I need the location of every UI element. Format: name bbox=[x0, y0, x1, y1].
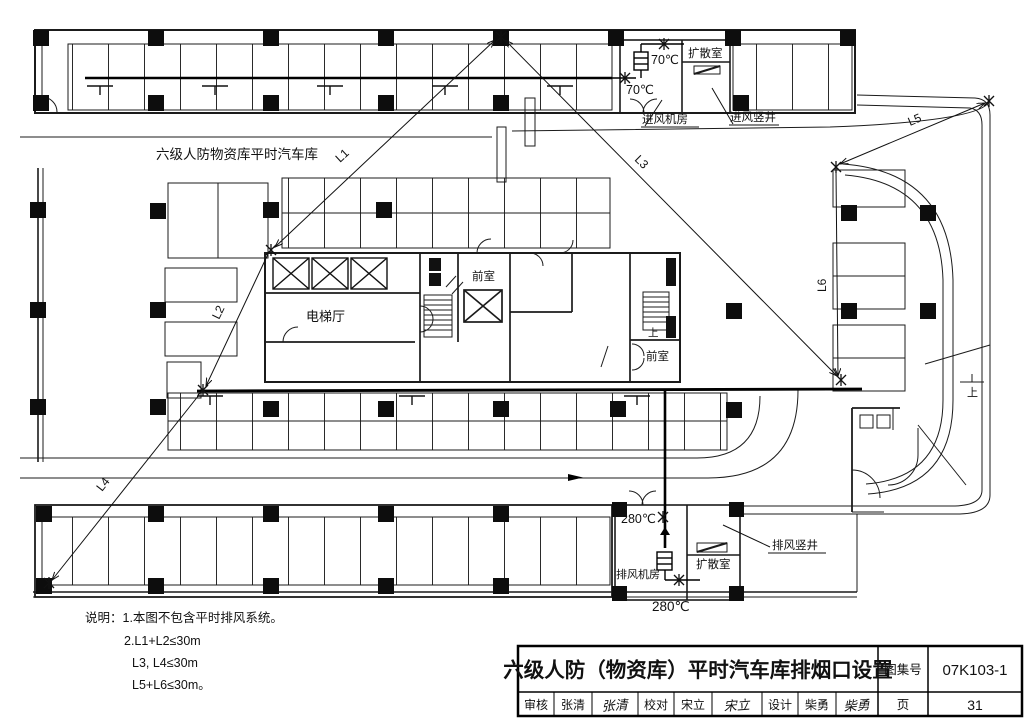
note-line-2: 2.L1+L2≤30m bbox=[124, 634, 201, 648]
floor-plan-svg: 六级人防物资库平时汽车库 70℃ 70℃ 扩散室 进风机房 进风竖井 电梯厅 前… bbox=[0, 0, 1028, 721]
intake-temp-2: 70℃ bbox=[626, 83, 654, 97]
measure-l5: L5 bbox=[906, 111, 924, 129]
proof-name: 宋立 bbox=[681, 697, 705, 712]
front-room-2-label: 前室 bbox=[646, 349, 669, 363]
design-signature: 柴勇 bbox=[843, 698, 871, 715]
exhaust-temp-1: 280℃ bbox=[621, 512, 656, 526]
measure-l1: L1 bbox=[332, 146, 352, 166]
page-number: 31 bbox=[967, 697, 983, 713]
notes-block: 说明：1.本图不包含平时排风系统。 2.L1+L2≤30m L3, L4≤30m… bbox=[85, 610, 283, 692]
drawing-title: 六级人防（物资库）平时汽车库排烟口设置 bbox=[503, 658, 893, 682]
exhaust-shaft-label: 排风竖井 bbox=[772, 538, 818, 552]
measure-l3: L3 bbox=[632, 152, 652, 172]
review-signature: 张清 bbox=[601, 698, 630, 715]
proof-signature: 宋立 bbox=[723, 698, 751, 715]
intake-shaft-label: 进风竖井 bbox=[730, 110, 776, 124]
ramp-up-label: 上 bbox=[967, 386, 978, 399]
note-line-3: L3, L4≤30m bbox=[132, 656, 198, 670]
intake-temp-1: 70℃ bbox=[651, 53, 679, 67]
measure-l4: L4 bbox=[93, 474, 112, 493]
intake-diffusion-room-label: 扩散室 bbox=[688, 46, 723, 60]
measure-l6: L6 bbox=[815, 278, 829, 292]
page-label: 页 bbox=[897, 698, 910, 712]
elevator-hall-label: 电梯厅 bbox=[306, 309, 345, 324]
intake-fan-room-label: 进风机房 bbox=[642, 112, 688, 126]
note-line-1: 说明：1.本图不包含平时排风系统。 bbox=[85, 610, 283, 625]
design-label: 设计 bbox=[768, 698, 792, 712]
exhaust-fan-room-label: 排风机房 bbox=[616, 567, 660, 581]
proof-label: 校对 bbox=[644, 697, 668, 712]
note-line-4: L5+L6≤30m。 bbox=[132, 678, 211, 692]
title-block: 六级人防（物资库）平时汽车库排烟口设置 图集号 07K103-1 审核 张清 张… bbox=[503, 646, 1022, 716]
atlas-number-value: 07K103-1 bbox=[942, 662, 1007, 679]
exhaust-diffusion-room-label: 扩散室 bbox=[696, 557, 731, 571]
atlas-number-label: 图集号 bbox=[884, 662, 922, 677]
design-name: 柴勇 bbox=[805, 698, 829, 712]
garage-area-label: 六级人防物资库平时汽车库 bbox=[156, 146, 318, 162]
drawing-sheet: 六级人防物资库平时汽车库 70℃ 70℃ 扩散室 进风机房 进风竖井 电梯厅 前… bbox=[0, 0, 1028, 721]
stair-up-1-label: 上 bbox=[648, 327, 659, 339]
review-name: 张清 bbox=[561, 698, 585, 712]
review-label: 审核 bbox=[524, 697, 548, 712]
front-room-1-label: 前室 bbox=[472, 269, 495, 283]
exhaust-temp-2: 280℃ bbox=[652, 599, 690, 614]
measure-l2: L2 bbox=[209, 303, 228, 321]
structural-columns bbox=[30, 30, 936, 601]
